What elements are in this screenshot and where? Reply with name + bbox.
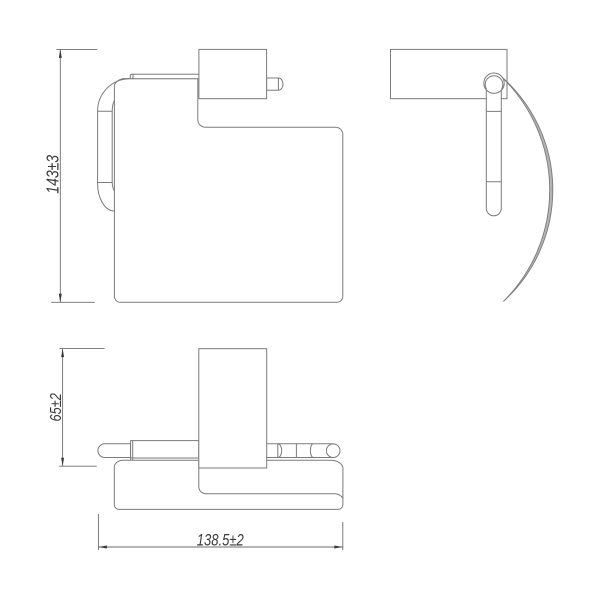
svg-text:143±3: 143±3 bbox=[44, 155, 63, 194]
svg-text:138.5±2: 138.5±2 bbox=[197, 532, 244, 550]
svg-text:65±2: 65±2 bbox=[48, 393, 66, 421]
